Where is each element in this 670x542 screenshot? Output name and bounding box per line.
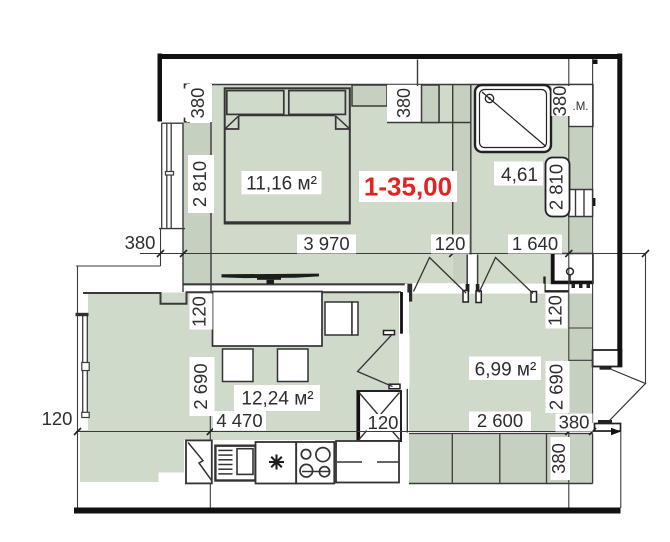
svg-text:2 690: 2 690: [545, 364, 566, 410]
svg-text:120: 120: [435, 233, 466, 254]
svg-text:120: 120: [368, 412, 399, 433]
svg-text:380: 380: [548, 443, 569, 474]
svg-text:3 970: 3 970: [303, 233, 349, 254]
svg-text:2 600: 2 600: [477, 410, 523, 431]
svg-text:380: 380: [559, 412, 590, 433]
svg-text:12,24 м²: 12,24 м²: [241, 389, 313, 410]
svg-text:380: 380: [125, 232, 156, 253]
svg-text:2 810: 2 810: [189, 161, 210, 207]
svg-text:4 470: 4 470: [216, 410, 262, 431]
svg-text:11,16 м²: 11,16 м²: [246, 174, 317, 195]
svg-text:2 690: 2 690: [190, 363, 211, 409]
svg-text:380: 380: [187, 88, 208, 119]
svg-text:6,99 м²: 6,99 м²: [475, 360, 537, 381]
svg-text:1 640: 1 640: [512, 233, 558, 254]
svg-text:380: 380: [549, 86, 570, 117]
svg-text:2 810: 2 810: [545, 164, 566, 210]
svg-text:.М.: .М.: [573, 101, 589, 113]
svg-text:1-35,00: 1-35,00: [364, 172, 452, 202]
svg-text:4,61: 4,61: [501, 165, 538, 186]
svg-text:120: 120: [188, 296, 209, 327]
svg-text:120: 120: [544, 295, 565, 326]
svg-text:380: 380: [394, 88, 414, 118]
svg-text:120: 120: [42, 408, 73, 429]
